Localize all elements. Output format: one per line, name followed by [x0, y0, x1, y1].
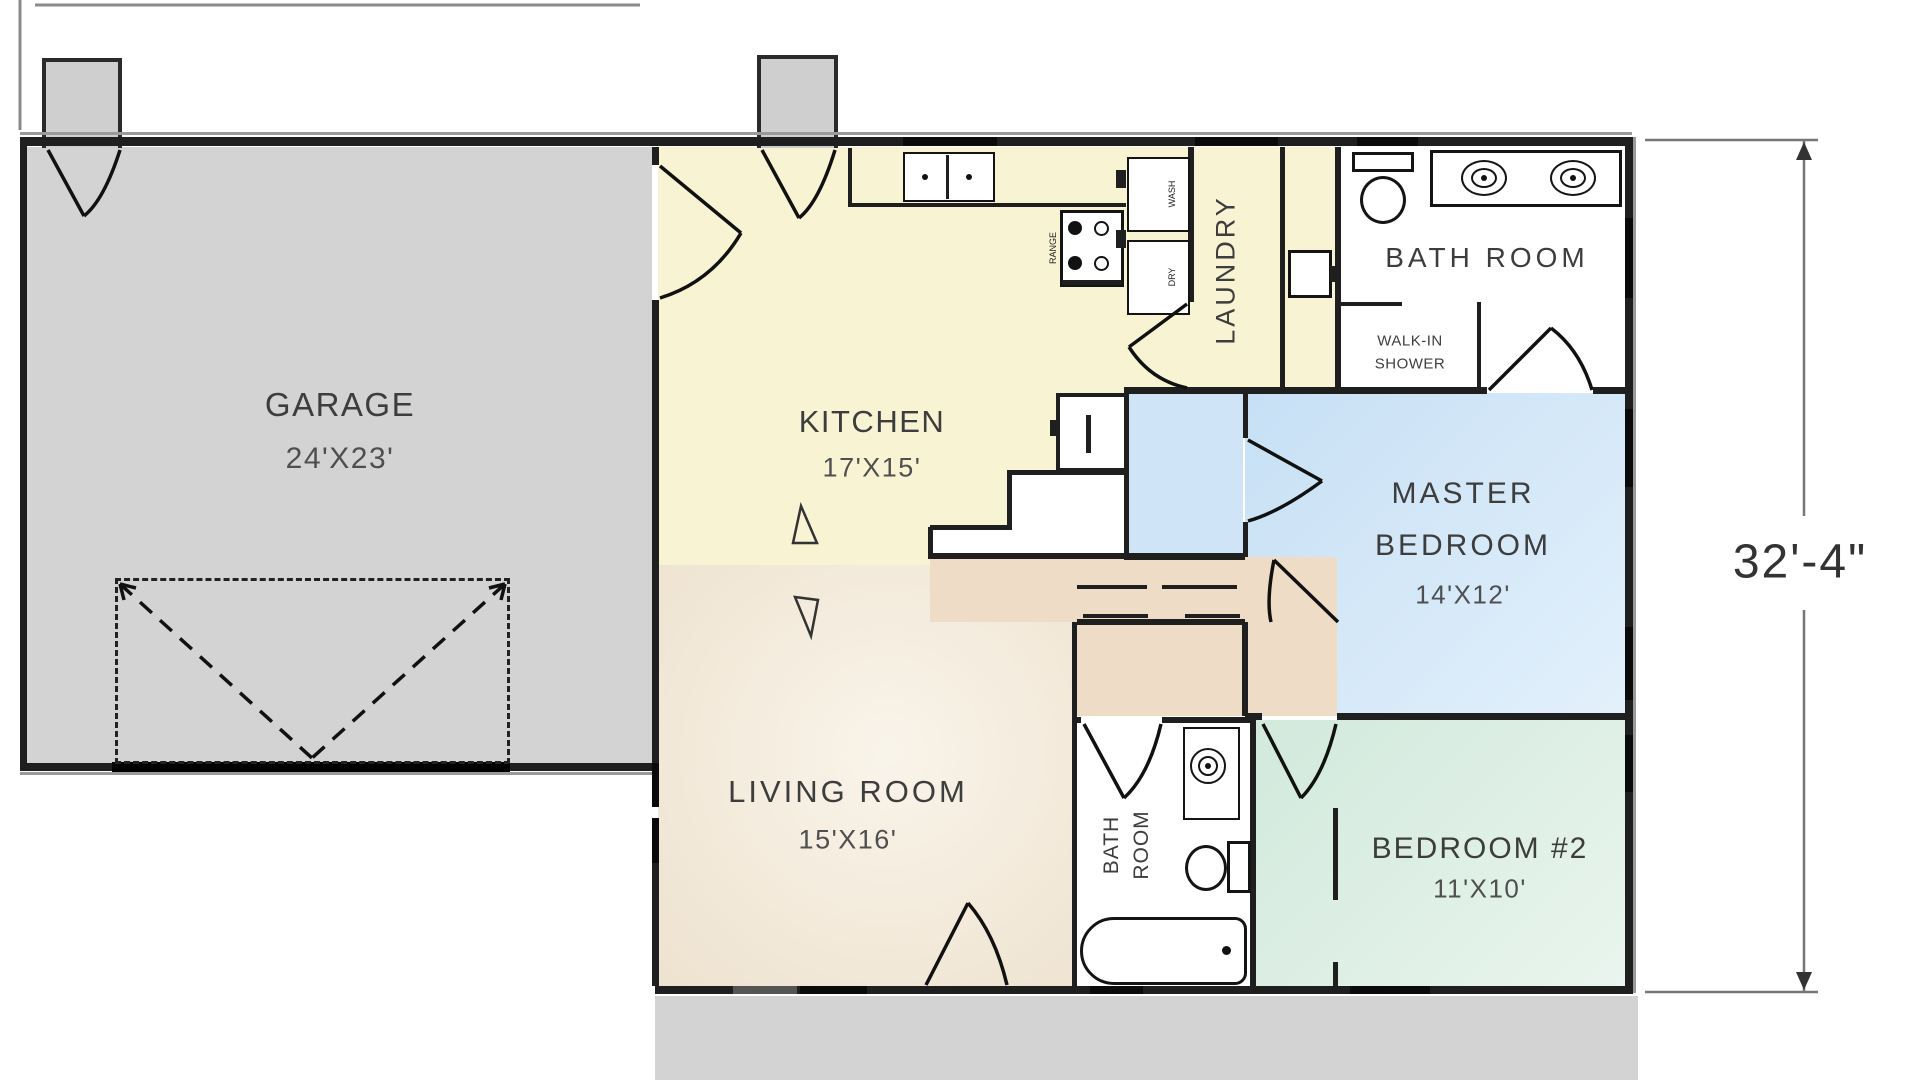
range-handle: [1062, 280, 1122, 285]
wall: [1072, 720, 1077, 986]
floor-plan: GARAGE 24'X23' KITCHEN 17'X15' LAUNDRY B…: [0, 0, 1920, 1080]
window: [1195, 137, 1278, 146]
wall: [652, 863, 659, 986]
master-closet: [1127, 393, 1243, 555]
wall: [1124, 387, 1487, 394]
window: [652, 818, 659, 863]
kitchen-label: KITCHEN: [799, 404, 946, 440]
laundry-label: LAUNDRY: [1211, 195, 1242, 345]
wall: [1072, 622, 1077, 720]
sink-drain: [1481, 175, 1487, 181]
porch: [655, 996, 1638, 1080]
window: [903, 137, 997, 146]
wall: [1077, 619, 1245, 625]
window: [652, 763, 659, 807]
master-label: BEDROOM: [1375, 529, 1551, 563]
wall: [1162, 717, 1255, 723]
sink-drain: [922, 174, 928, 180]
wall: [20, 772, 655, 775]
garage-door-outline: [115, 578, 510, 764]
burner: [1094, 221, 1109, 236]
kitchen-sink-icon: [903, 152, 995, 202]
walkin-shower-label: WALK-IN: [1377, 333, 1442, 350]
wall: [1593, 387, 1625, 394]
wall: [1243, 393, 1248, 438]
linen-shelf: [1077, 585, 1147, 589]
wall: [1056, 468, 1124, 473]
wall: [1124, 393, 1129, 557]
sink-drain: [1570, 175, 1576, 181]
washer-icon: [1127, 157, 1190, 232]
bathroom2-label: BATH: [1100, 816, 1124, 874]
window: [1090, 986, 1143, 994]
dryer-icon: [1127, 240, 1190, 315]
arrow-icon: [1796, 972, 1812, 990]
arrow-icon: [1796, 142, 1812, 160]
hallway: [930, 557, 1337, 622]
window: [1357, 137, 1418, 146]
bedroom2-dims: 11'X10': [1433, 874, 1527, 905]
wall: [20, 132, 1632, 135]
window: [1625, 735, 1633, 792]
wall: [930, 525, 1012, 530]
toilet-icon: [1360, 176, 1406, 224]
burner: [1068, 256, 1082, 270]
wall: [1337, 713, 1625, 720]
shower-wall: [1337, 302, 1402, 306]
toilet-icon: [1352, 152, 1414, 172]
toilet-icon: [1185, 845, 1227, 891]
garage-label: GARAGE: [265, 386, 415, 424]
master-label: MASTER: [1391, 477, 1534, 511]
window: [1350, 986, 1430, 994]
window: [800, 986, 867, 994]
dryer-label: DRY: [1167, 268, 1177, 287]
burner: [1094, 256, 1109, 271]
wall: [1007, 470, 1012, 530]
wall: [1056, 393, 1124, 397]
linen-shelf: [1083, 614, 1148, 618]
shower-wall: [1477, 302, 1481, 390]
sink-drain: [1205, 763, 1211, 769]
wall: [928, 553, 1244, 559]
bathroom1-label: BATH ROOM: [1385, 242, 1588, 274]
hall-closet: [1060, 395, 1124, 470]
closet-wall: [1333, 808, 1338, 900]
window: [1625, 409, 1633, 487]
window: [1625, 218, 1633, 298]
wall: [1280, 147, 1285, 390]
bedroom2-label: BEDROOM #2: [1372, 832, 1589, 866]
range-icon: [1060, 210, 1124, 287]
burner: [1068, 221, 1082, 235]
bathroom2-label: ROOM: [1130, 810, 1154, 879]
walkin-shower-label: SHOWER: [1375, 356, 1446, 373]
door-jamb: [1116, 170, 1126, 188]
wall: [1243, 522, 1248, 557]
dimension-label: 32'-4": [1733, 535, 1867, 590]
sink-divider: [946, 155, 949, 199]
closet-wall: [1333, 962, 1338, 986]
water-heater-icon: [1288, 250, 1332, 298]
window: [1625, 627, 1633, 700]
garage-dims: 24'X23': [286, 442, 395, 476]
hallway-pocket: [1075, 622, 1337, 716]
toilet-icon: [1227, 841, 1251, 893]
living-dims: 15'X16': [799, 825, 898, 856]
water-heater-tab: [1330, 266, 1338, 282]
kitchen-dims: 17'X15': [823, 453, 922, 484]
pantry-area: [1012, 475, 1124, 557]
living-label: LIVING ROOM: [728, 774, 968, 810]
range-label: RANGE: [1048, 232, 1058, 264]
wall: [1242, 622, 1248, 716]
window: [733, 986, 797, 994]
door-jamb: [1116, 230, 1126, 248]
washer-label: WASH: [1167, 181, 1177, 208]
closet-rod: [1086, 415, 1091, 453]
sink-drain: [966, 174, 972, 180]
wall: [652, 147, 659, 165]
wall: [20, 137, 27, 770]
master-dims: 14'X12': [1415, 580, 1511, 611]
door-jamb: [1050, 420, 1058, 436]
linen-shelf: [1162, 585, 1237, 589]
wall: [928, 527, 933, 558]
counter-edge: [848, 203, 1126, 207]
wall: [652, 300, 659, 763]
wall: [1633, 137, 1636, 993]
counter-edge: [848, 148, 852, 207]
tub-faucet: [1222, 946, 1231, 955]
linen-shelf: [1185, 614, 1240, 618]
